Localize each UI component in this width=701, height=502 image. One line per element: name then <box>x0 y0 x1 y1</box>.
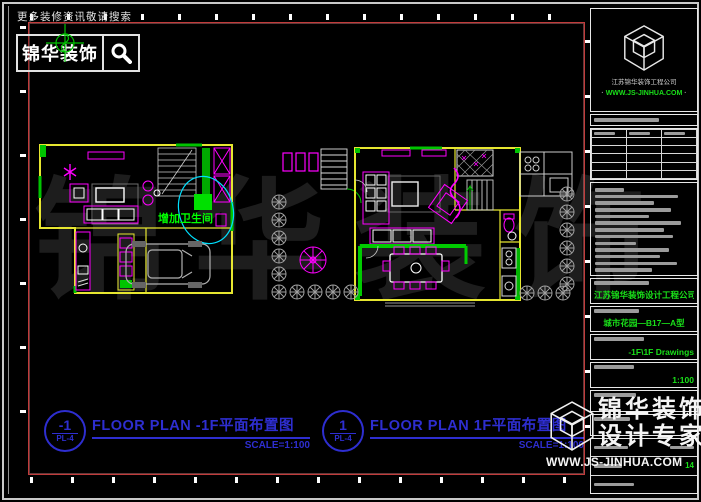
bathroom-right-plan <box>504 214 516 240</box>
project-name-row: 江苏锦华装饰设计工程公司 <box>590 278 698 304</box>
paper-frame-inner-line <box>8 6 9 494</box>
hatched-bed <box>457 150 493 176</box>
closet-x-boxes <box>214 148 230 202</box>
scale-row: 1:100 <box>590 362 698 388</box>
plan-title-text-left: FLOOR PLAN -1F平面布置图 <box>92 414 310 439</box>
watermark-website: WWW.JS-JINHUA.COM <box>546 455 700 469</box>
search-icon <box>110 42 132 64</box>
coffee-table <box>96 188 124 202</box>
annotation-add-bathroom: 增加卫生间 <box>158 211 213 225</box>
large-tree-magenta <box>300 247 326 273</box>
corner-watermark: 锦华装饰 设计专家 WWW.JS-JINHUA.COM <box>546 396 700 469</box>
notes-panel <box>590 182 698 276</box>
cube-logo-icon <box>620 24 668 72</box>
dining-set <box>383 247 449 289</box>
rotated-chair <box>429 185 468 224</box>
search-button[interactable] <box>102 36 138 70</box>
stairs-right-plan <box>467 180 493 210</box>
drawing-name-row: -1F\1F Drawings <box>590 334 698 360</box>
sofa-right-plan <box>363 172 434 244</box>
entry-windows <box>283 153 318 171</box>
site-name-row: 城市花园—B17—A型 <box>590 306 698 332</box>
kitchen-left-plan <box>76 232 134 290</box>
plan-right-1f <box>283 148 572 306</box>
company-logo-panel: 江苏锦华装饰工程公司 · WWW.JS-JINHUA.COM · <box>590 8 698 112</box>
new-bathroom-block <box>194 194 212 210</box>
plan-title-left: -1 PL-4 FLOOR PLAN -1F平面布置图 SCALE=1:100 <box>44 410 310 452</box>
entry-stairs <box>321 149 347 189</box>
company-website: · WWW.JS-JINHUA.COM · <box>601 90 686 97</box>
annex-rooms <box>520 152 572 196</box>
kitchen-right-plan <box>502 248 516 296</box>
tv-square <box>392 182 418 206</box>
company-name: 江苏锦华装饰工程公司 <box>612 76 677 86</box>
watermark-brand: 锦华装饰 <box>598 396 701 423</box>
ruler-ticks-bottom <box>30 477 582 483</box>
north-arrow-icon <box>44 22 86 64</box>
cad-drawing-screenshot: 锦华装饰 <box>0 0 701 502</box>
car <box>126 241 210 288</box>
stairs-left-plan <box>158 148 196 196</box>
detail-bubble-right: 1 PL-4 <box>322 410 364 452</box>
plan-left-minus1f: 增加卫生间 <box>40 145 241 293</box>
titleblock-header-strip <box>590 114 698 126</box>
floorplan-canvas: 增加卫生间 <box>30 136 588 318</box>
watermark-tagline: 设计专家 <box>598 423 701 450</box>
cube-logo-watermark-icon <box>546 400 598 452</box>
plan-scale-left: SCALE=1:100 <box>92 440 310 451</box>
balcony-lines <box>385 303 475 306</box>
redacted-text-bar <box>594 118 659 122</box>
ruler-ticks-left <box>20 26 26 472</box>
plan-title-right: 1 PL-4 FLOOR PLAN 1F平面布置图 SCALE=1:100 <box>322 410 584 452</box>
revision-table <box>590 128 698 180</box>
ceiling-fan-symbol <box>64 164 76 180</box>
detail-bubble-left: -1 PL-4 <box>44 410 86 452</box>
